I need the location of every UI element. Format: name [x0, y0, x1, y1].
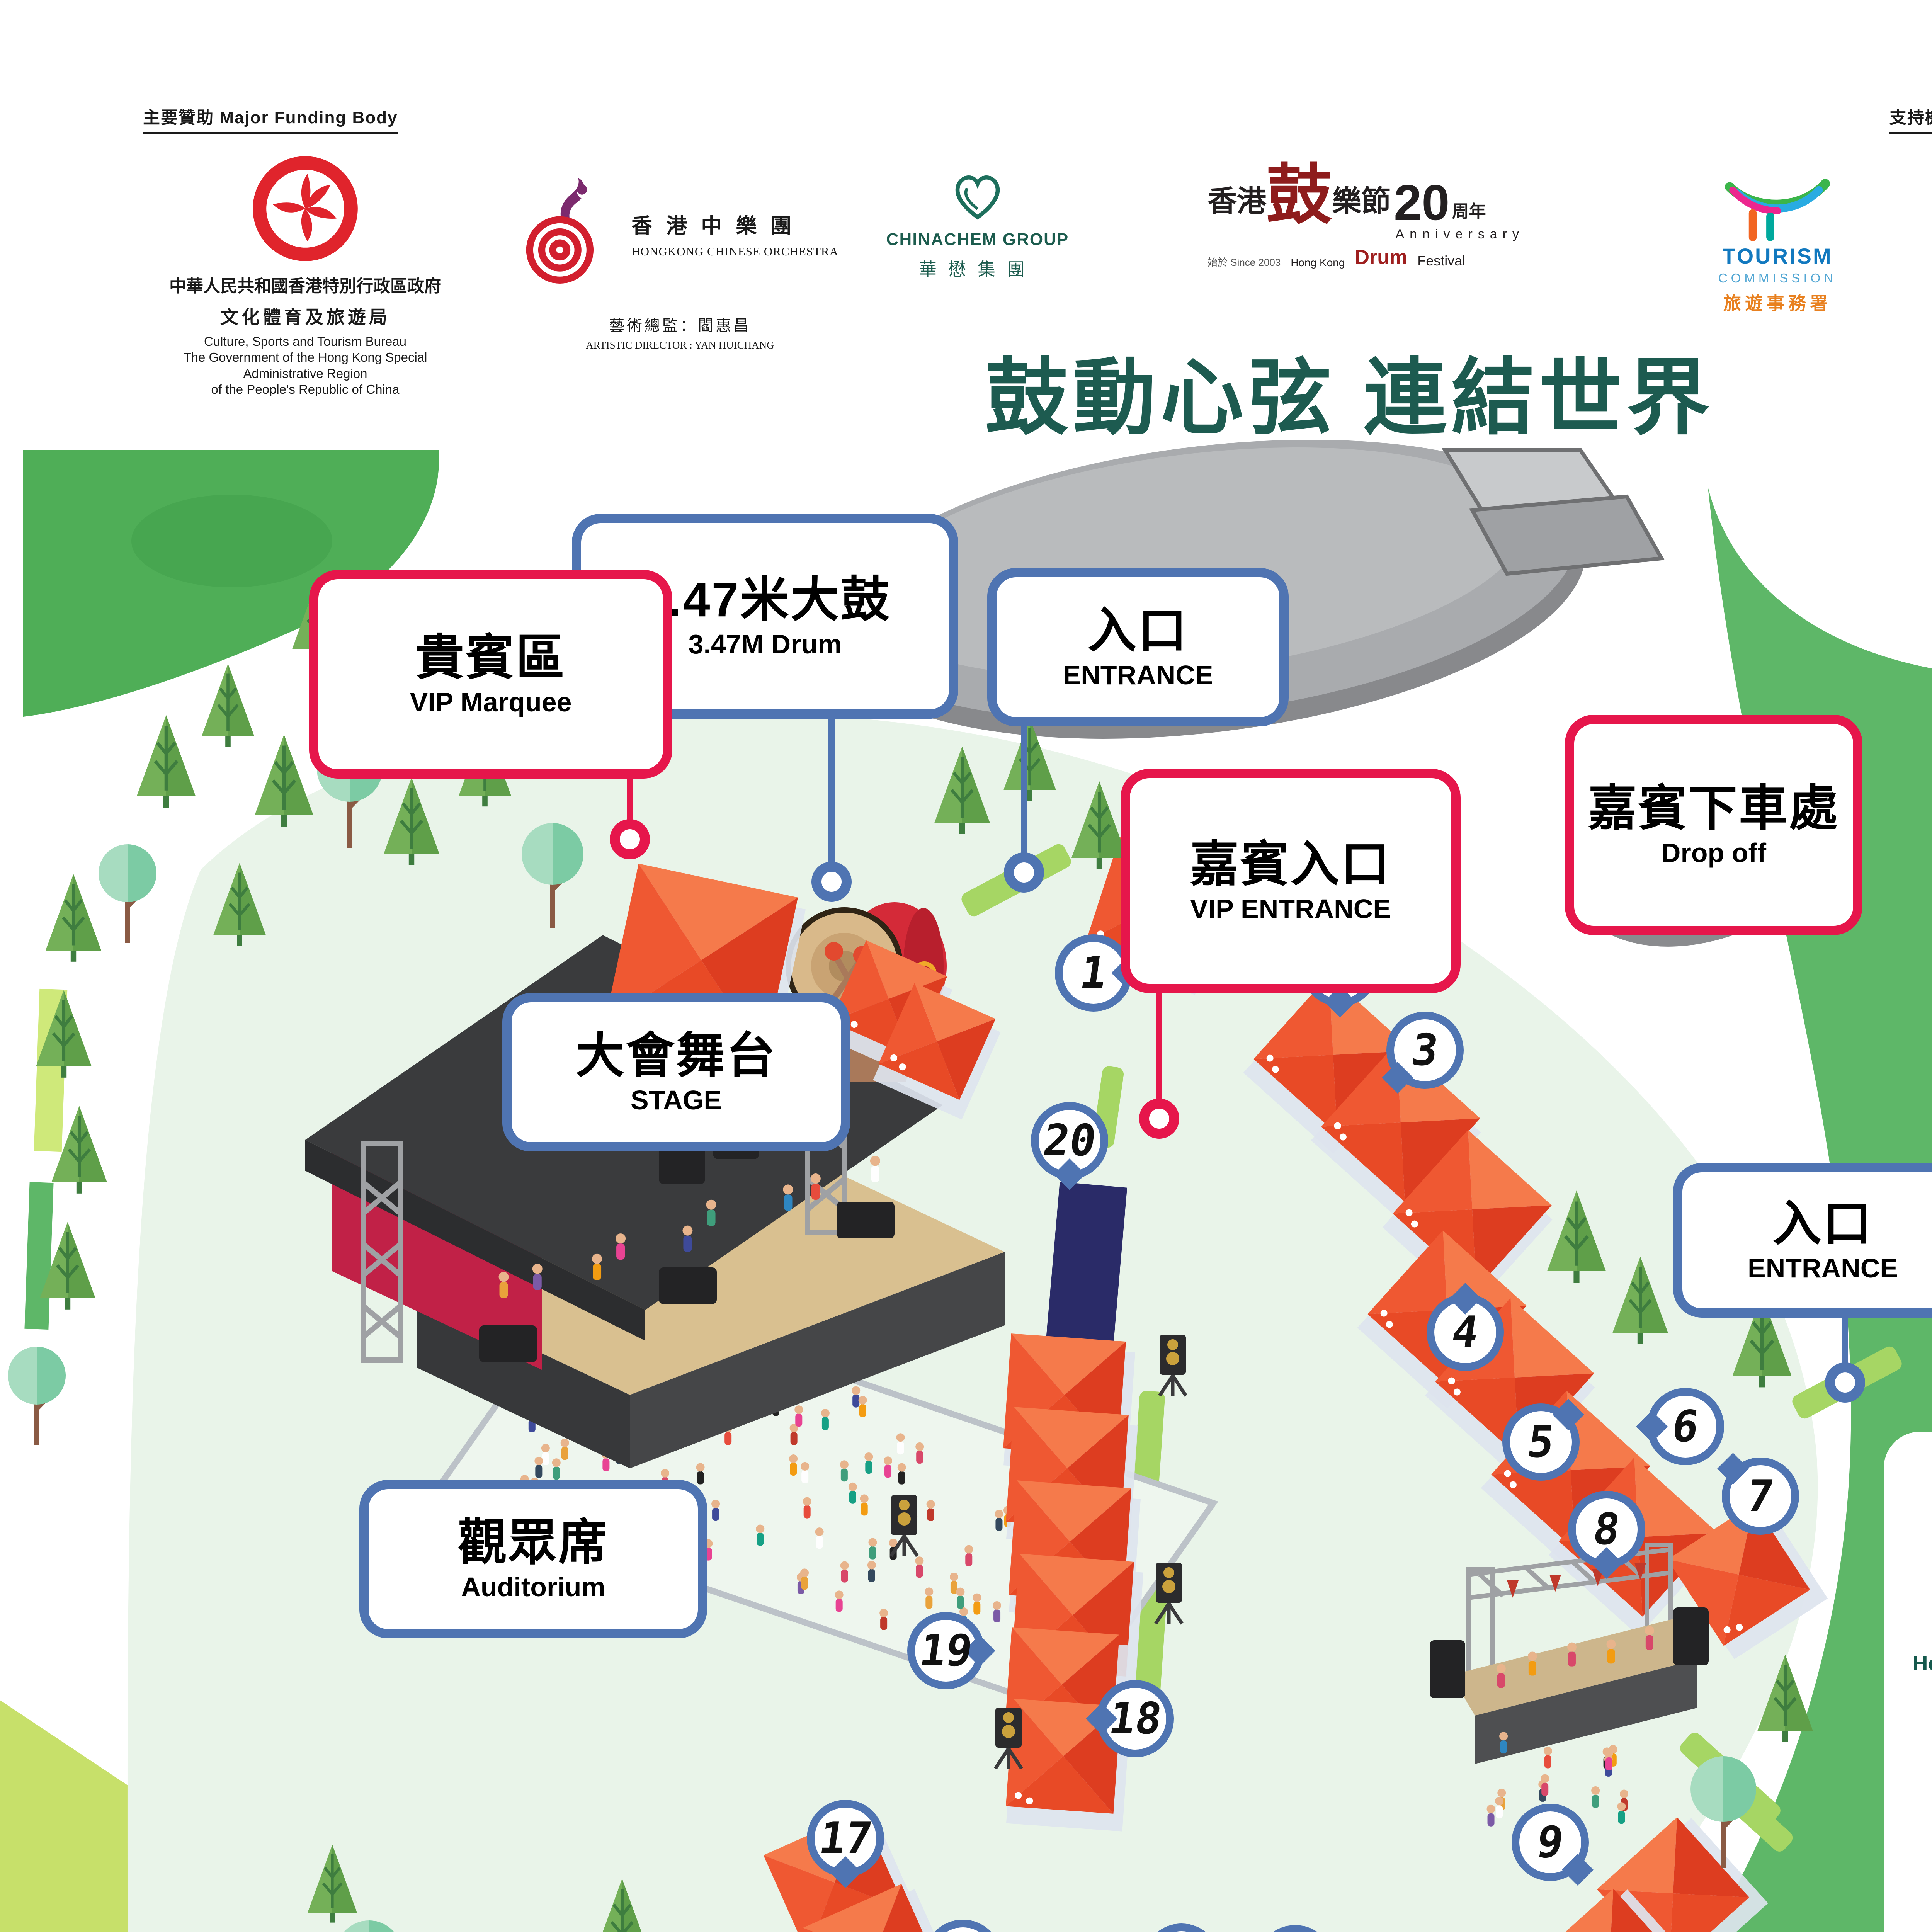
gov-zh-line2: 文化體育及旅遊局: [147, 302, 464, 329]
callout-leader-vip-entrance: [1156, 991, 1162, 1101]
programme-en: Performances of Hong Kong Synergy 24 Dru…: [1905, 1911, 1932, 1932]
programme-en: Kick off ceremony: [1905, 1780, 1932, 1809]
speaker-icon: [995, 1708, 1022, 1769]
chinachem-en: CHINACHEM GROUP: [885, 230, 1070, 249]
callout-leader-drum: [828, 717, 835, 864]
callout-vip-entrance-en: VIP ENTRANCE: [1190, 894, 1391, 924]
tourism-commission-icon: [1714, 162, 1841, 243]
map-marker-19: 19: [907, 1612, 985, 1689]
callout-auditorium-zh: 觀眾席: [458, 1516, 609, 1569]
map-marker-17: 17: [807, 1800, 884, 1877]
programme-zh: 「香港活力鼓令24式擂台賽」頒獎禮: [1905, 1611, 1932, 1643]
drumfest-zhou: 周年: [1452, 197, 1486, 225]
tourism-en2: COMMISSION: [1673, 271, 1882, 286]
major-funding-label: 主要贊助 Major Funding Body: [143, 104, 398, 134]
callout-dropoff: 嘉賓下車處 Drop off: [1565, 715, 1862, 935]
callout-drum-en: 3.47M Drum: [689, 629, 842, 659]
drumfest-anniversary: Anniversary: [1207, 227, 1524, 242]
speaker-icon: [1156, 1563, 1182, 1624]
map-marker-20: 20: [1031, 1102, 1108, 1179]
speaker-icon: [1160, 1335, 1186, 1396]
drumfest-drum-char: 鼓: [1266, 166, 1332, 225]
callout-dropoff-zh: 嘉賓下車處: [1588, 782, 1839, 835]
programme-items: 12:15-14:00 「香港活力鼓令24式擂台賽」頒獎禮 Hong Kong …: [1905, 1568, 1932, 1932]
programme-en: Hong Kong Synergy 24 Drum Competition pr…: [1905, 1649, 1932, 1678]
callout-entrance-top: 入口 ENTRANCE: [987, 568, 1289, 726]
drum-festival-logo: 香港 鼓 樂節 20 周年 Anniversary 始於 Since 2003 …: [1207, 166, 1524, 269]
programme-item-2: 14:00-14:30 啟動禮 Kick off ceremony: [1905, 1699, 1932, 1809]
drumfest-since: 始於 Since 2003: [1207, 255, 1281, 269]
hkco-zh: 香港中樂團: [631, 209, 838, 239]
hkco-en: HONGKONG CHINESE ORCHESTRA: [631, 245, 838, 259]
programme-zh: 啟動禮: [1905, 1742, 1932, 1774]
map-marker-4: 4: [1427, 1294, 1504, 1371]
drumfest-drum-word: Drum: [1355, 246, 1407, 269]
callout-dot-vip-entrance: [1139, 1099, 1179, 1139]
callout-auditorium: 觀眾席 Auditorium: [359, 1480, 707, 1638]
speaker-icon: [891, 1495, 917, 1556]
callout-dot-entrance-right: [1825, 1362, 1865, 1403]
callout-vip-marquee: 貴賓區 VIP Marquee: [309, 570, 672, 779]
map-marker-7: 7: [1722, 1458, 1799, 1535]
map-marker-8: 8: [1568, 1491, 1645, 1568]
map-marker-3: 3: [1386, 1012, 1464, 1089]
callout-vip-marquee-zh: 貴賓區: [415, 631, 566, 684]
supported-by-label: 支持機構 Supported by: [1889, 104, 1932, 134]
callout-stage-en: STAGE: [631, 1085, 722, 1115]
chinachem-logo: CHINACHEM GROUP 華懋集團: [885, 166, 1070, 281]
programme-item-1: 12:15-14:00 「香港活力鼓令24式擂台賽」頒獎禮 Hong Kong …: [1905, 1568, 1932, 1678]
drumfest-festival: Festival: [1417, 253, 1465, 269]
hkco-swirl-icon: [522, 162, 622, 301]
callout-auditorium-en: Auditorium: [461, 1572, 605, 1602]
callout-vip-entrance-zh: 嘉賓入口: [1190, 838, 1391, 891]
tourism-zh: 旅遊事務署: [1673, 289, 1882, 315]
pine-tree-icon: [202, 664, 254, 747]
callout-entrance-right-zh: 入口: [1773, 1197, 1873, 1250]
round-tree-icon: [99, 844, 156, 943]
callout-leader-entrance-top: [1021, 724, 1027, 854]
round-tree-icon: [8, 1347, 66, 1445]
map-marker-5: 5: [1502, 1403, 1580, 1481]
poster-title: 鼓動心弦 連結世界: [0, 330, 1932, 451]
callout-leader-entrance-right: [1842, 1316, 1848, 1364]
callout-vip-entrance: 嘉賓入口 VIP ENTRANCE: [1121, 769, 1461, 993]
programme-zh: 「香港活力鼓令24式擂台賽」獲獎隊伍展演: [1905, 1872, 1932, 1905]
callout-drum-zh: 3.47米大鼓: [639, 573, 891, 626]
callout-entrance-right-en: ENTRANCE: [1748, 1253, 1898, 1283]
callout-vip-marquee-en: VIP Marquee: [410, 687, 572, 717]
map-marker-6: 6: [1647, 1388, 1724, 1465]
map-marker-9: 9: [1512, 1804, 1589, 1881]
drumfest-zh-b: 樂節: [1332, 177, 1391, 225]
callout-entrance-top-zh: 入口: [1088, 604, 1188, 657]
chinachem-heart-icon: [949, 166, 1007, 224]
callout-entrance-top-en: ENTRANCE: [1063, 660, 1213, 690]
callout-dot-entrance-top: [1004, 852, 1044, 893]
drumfest-zh-a: 香港: [1207, 177, 1266, 225]
callout-dropoff-en: Drop off: [1661, 838, 1766, 868]
pine-tree-icon: [46, 874, 101, 962]
callout-leader-vip-marquee: [627, 777, 633, 821]
callout-stage-zh: 大會舞台: [576, 1029, 777, 1082]
pine-tree-icon: [137, 715, 196, 808]
callout-dot-drum: [811, 862, 852, 902]
chinachem-zh: 華懋集團: [885, 255, 1070, 281]
callout-dot-vip-marquee: [610, 819, 650, 859]
drumfest-20: 20: [1394, 180, 1450, 225]
callout-entrance-right: 入口 ENTRANCE: [1673, 1163, 1932, 1318]
hksar-emblem-icon: [251, 155, 359, 263]
programme-item-3: 14:30-15:00 「香港活力鼓令24式擂台賽」獲獎隊伍展演 Perform…: [1905, 1830, 1932, 1932]
drumfest-hongkong: Hong Kong: [1291, 257, 1345, 269]
hkco-logo: 香港中樂團 HONGKONG CHINESE ORCHESTRA 藝術總監：閻惠…: [522, 162, 838, 351]
map-marker-18: 18: [1097, 1680, 1174, 1757]
tourism-en1: TOURISM: [1673, 243, 1882, 269]
callout-stage: 大會舞台 STAGE: [502, 993, 850, 1151]
pine-tree-icon: [255, 735, 313, 827]
gov-zh-line1: 中華人民共和國香港特別行政區政府: [147, 272, 464, 297]
tourism-commission-logo: TOURISM COMMISSION 旅遊事務署: [1673, 162, 1882, 315]
